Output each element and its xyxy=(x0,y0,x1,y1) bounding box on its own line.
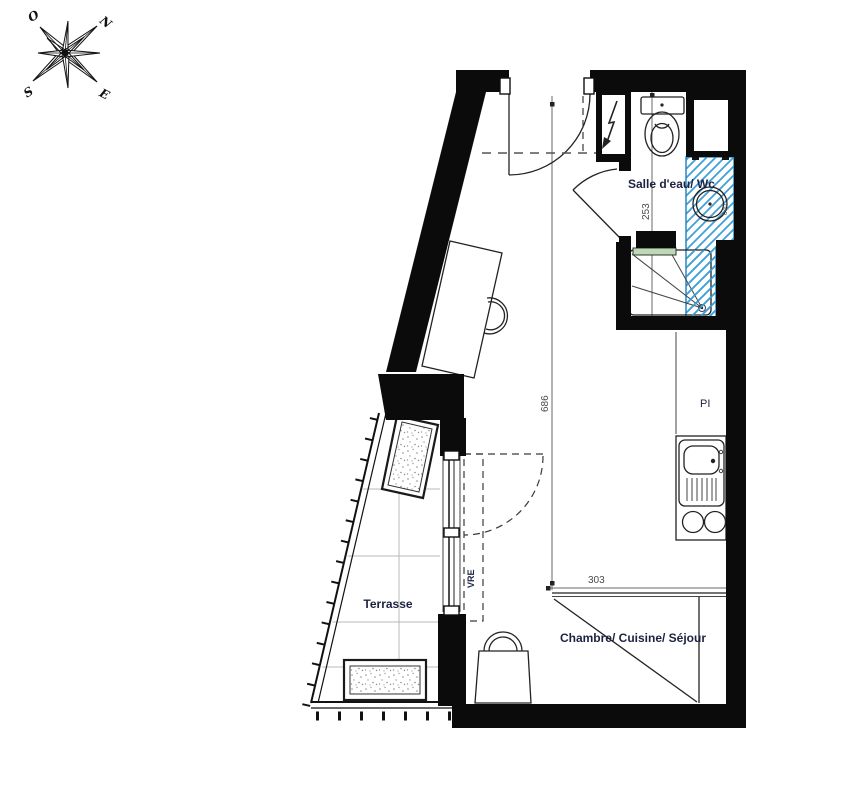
dimension-253: 253 xyxy=(641,203,652,220)
hob-burner-right xyxy=(705,512,726,533)
basin-diameter-label: 040 xyxy=(722,204,729,215)
right-wall xyxy=(734,70,746,728)
shower-top-wall xyxy=(636,231,676,248)
right-wall-lower-chunk xyxy=(726,330,734,704)
entry-jamb-left xyxy=(500,78,510,94)
shower-bottom-wall xyxy=(616,316,734,330)
terrace-planter-lower xyxy=(344,660,426,700)
door-jamb-block-upper xyxy=(619,157,631,171)
shower-glass-screen xyxy=(633,248,676,255)
terrace-label: Terrasse xyxy=(363,597,412,611)
shower-hatch-overlay xyxy=(688,250,716,321)
terrace-planter-upper xyxy=(382,416,438,498)
left-corner-wall xyxy=(378,374,464,420)
bathroom-label: Salle d'eau/ Wc xyxy=(628,177,715,191)
terrace-window xyxy=(443,451,460,615)
bathroom-door xyxy=(573,169,621,239)
dimension-303: 303 xyxy=(588,575,605,586)
slanted-left-wall xyxy=(386,92,486,372)
bottom-wall xyxy=(452,704,746,728)
compass-east-label: E xyxy=(96,85,112,103)
compass-south-label: S xyxy=(21,84,36,101)
compass-west-label: O xyxy=(26,7,42,25)
kitchen-unit xyxy=(676,436,726,540)
sink-drainer xyxy=(687,478,716,501)
window-wall-lower xyxy=(438,614,466,706)
dimension-686: 686 xyxy=(540,395,551,412)
main-room-label: Chambre/ Cuisine/ Séjour xyxy=(560,631,706,645)
floor-plan-page: O N S E xyxy=(0,0,868,800)
floor-plan-drawing: O N S E xyxy=(0,0,868,800)
faucet-icon xyxy=(711,459,715,463)
entry-jamb-right xyxy=(584,78,594,94)
closet-label: PI xyxy=(700,398,710,410)
terrace-area xyxy=(300,413,452,716)
window-wall-upper xyxy=(440,418,466,456)
compass-rose-icon: O N S E xyxy=(21,7,115,103)
toilet-fixture xyxy=(641,97,684,156)
compass-center xyxy=(62,50,68,56)
roller-shutter-label: VRE xyxy=(466,569,476,588)
terrace-door-dashed xyxy=(464,454,543,621)
bag-furniture xyxy=(475,632,531,703)
entry-door xyxy=(509,94,590,175)
compass-north-label: N xyxy=(96,13,115,32)
niche-opening xyxy=(694,100,728,151)
bed xyxy=(552,593,734,703)
hob-burner-left xyxy=(683,512,704,533)
